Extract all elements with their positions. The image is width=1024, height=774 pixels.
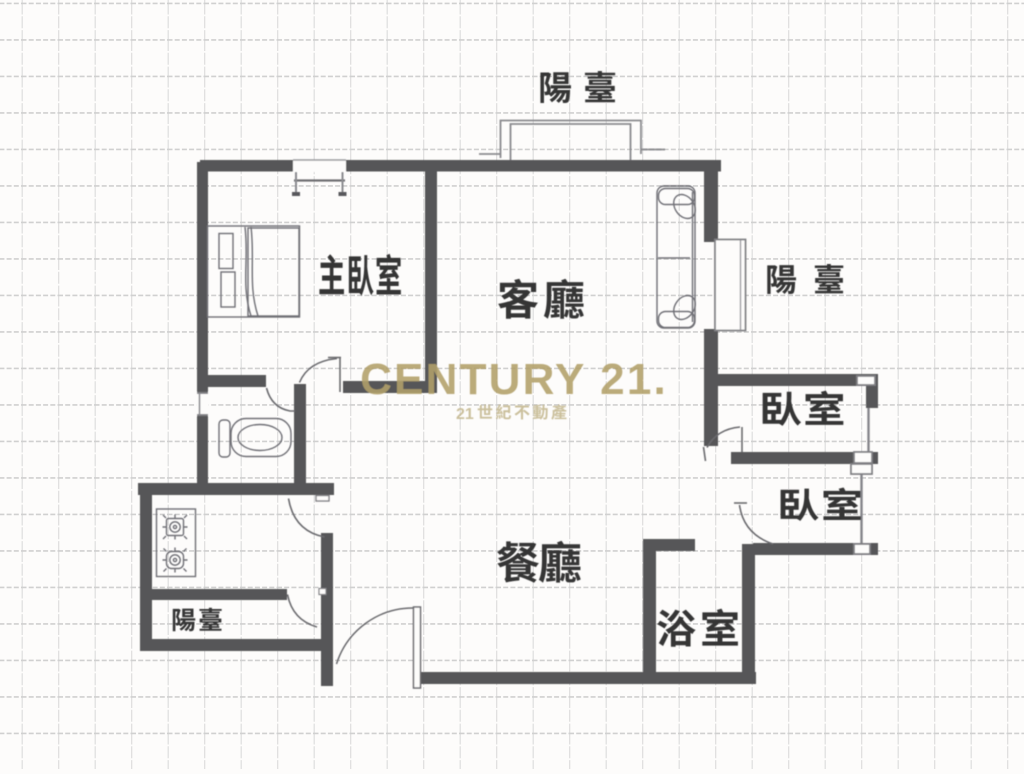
svg-text:21: 21 (456, 406, 474, 423)
svg-text:CENTURY 21.: CENTURY 21. (360, 355, 668, 404)
